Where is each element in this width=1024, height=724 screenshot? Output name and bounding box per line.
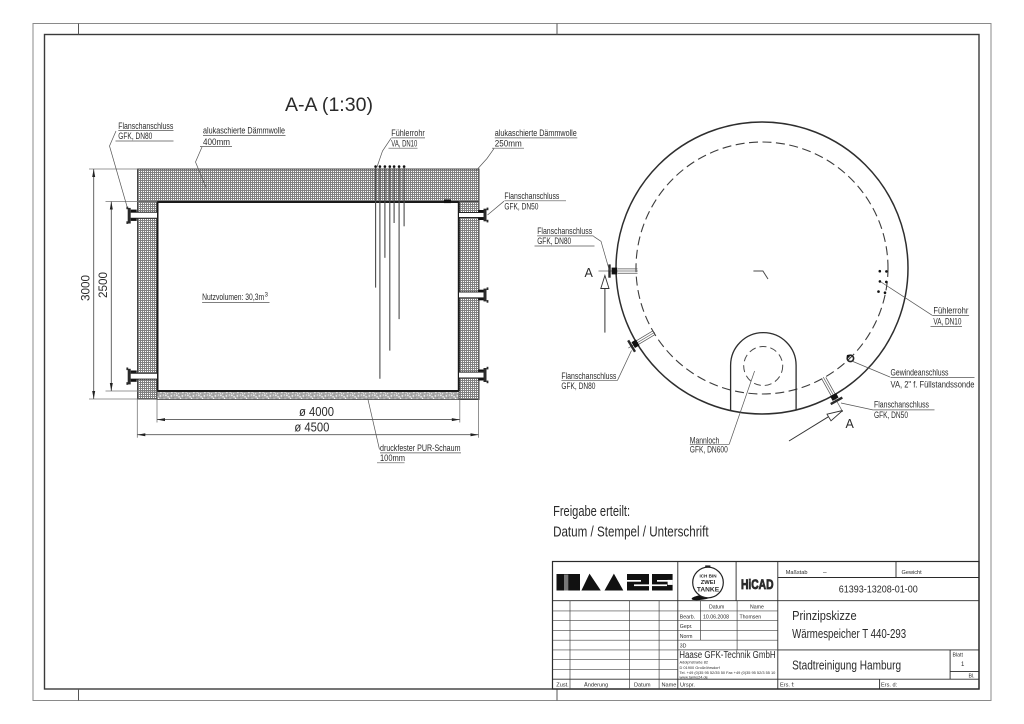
svg-text:Gepr.: Gepr. xyxy=(680,624,693,630)
svg-text:Bl.: Bl. xyxy=(969,674,975,680)
svg-text:–: – xyxy=(823,569,827,576)
svg-text:Flanschanschluss: Flanschanschluss xyxy=(874,400,929,410)
svg-text:A: A xyxy=(585,266,594,280)
svg-text:Freigabe erteilt:: Freigabe erteilt: xyxy=(553,504,630,520)
svg-text:ø 4000: ø 4000 xyxy=(299,405,334,419)
svg-text:Bearb.: Bearb. xyxy=(680,614,695,620)
svg-text:D 01900 Großröhrsdorf: D 01900 Großröhrsdorf xyxy=(680,665,721,670)
svg-text:ø 4500: ø 4500 xyxy=(294,421,329,435)
svg-text:HiCAD: HiCAD xyxy=(741,576,774,592)
svg-text:400mm: 400mm xyxy=(203,137,230,147)
svg-text:Ers. f:: Ers. f: xyxy=(780,682,795,688)
svg-text:GFK, DN80: GFK, DN80 xyxy=(537,236,571,246)
svg-text:250mm: 250mm xyxy=(495,138,522,148)
svg-text:GFK, DN80: GFK, DN80 xyxy=(118,131,152,141)
svg-text:Prinzipskizze: Prinzipskizze xyxy=(792,609,857,623)
svg-text:Ers. d:: Ers. d: xyxy=(881,682,898,688)
svg-text:Zust.: Zust. xyxy=(556,682,569,688)
svg-text:Fühlerrohr: Fühlerrohr xyxy=(391,128,425,138)
svg-text:3000: 3000 xyxy=(81,275,93,301)
svg-text:Änderung: Änderung xyxy=(584,681,608,688)
svg-text:Name: Name xyxy=(662,682,677,688)
svg-text:druckfester PUR-Schaum: druckfester PUR-Schaum xyxy=(380,443,461,453)
svg-text:Thomsen: Thomsen xyxy=(740,614,762,620)
svg-text:Gewindeanschluss: Gewindeanschluss xyxy=(891,368,949,378)
svg-text:Flanschanschluss: Flanschanschluss xyxy=(504,191,559,201)
svg-text:GFK, DN600: GFK, DN600 xyxy=(690,445,728,455)
svg-text:Fühlerrohr: Fühlerrohr xyxy=(933,305,968,315)
svg-text:Adolphstraße 82: Adolphstraße 82 xyxy=(680,660,709,665)
svg-text:Blatt: Blatt xyxy=(953,653,964,659)
svg-text:VA, DN10: VA, DN10 xyxy=(933,317,961,327)
svg-text:Datum / Stempel / Unterschri: Datum / Stempel / Unterschrift xyxy=(553,525,709,541)
svg-text:alukaschierte Dämmwolle: alukaschierte Dämmwolle xyxy=(203,126,285,136)
svg-text:Datum: Datum xyxy=(634,682,651,688)
svg-text:ZWEI: ZWEI xyxy=(701,580,716,586)
svg-text:TANKE: TANKE xyxy=(697,587,720,594)
svg-text:Flanschanschluss: Flanschanschluss xyxy=(537,226,592,236)
svg-text:GFK, DN50: GFK, DN50 xyxy=(874,410,908,420)
svg-text:alukaschierte Dämmwolle: alukaschierte Dämmwolle xyxy=(495,128,577,138)
svg-text:Datum: Datum xyxy=(709,605,724,611)
svg-text:Norm: Norm xyxy=(680,634,693,640)
svg-text:A: A xyxy=(846,417,855,431)
svg-text:Wärmespeicher T 440-293: Wärmespeicher T 440-293 xyxy=(792,627,906,641)
svg-text:10.06.2008: 10.06.2008 xyxy=(703,614,729,620)
svg-text:VA, DN10: VA, DN10 xyxy=(391,138,417,148)
svg-text:3: 3 xyxy=(265,293,269,299)
svg-text:www.tanks24.de: www.tanks24.de xyxy=(680,675,708,680)
svg-text:ICH BIN: ICH BIN xyxy=(699,574,717,579)
svg-text:100mm: 100mm xyxy=(380,453,405,463)
svg-text:Urspr.: Urspr. xyxy=(680,682,695,688)
svg-text:Gewicht: Gewicht xyxy=(902,570,923,576)
svg-text:GFK, DN80: GFK, DN80 xyxy=(561,381,595,391)
svg-text:61393-13208-01-00: 61393-13208-01-00 xyxy=(839,584,918,596)
svg-text:Maßstab: Maßstab xyxy=(786,570,808,576)
svg-text:A-A (1:30): A-A (1:30) xyxy=(285,95,373,116)
svg-text:2500: 2500 xyxy=(98,272,110,298)
svg-text:Flanschanschluss: Flanschanschluss xyxy=(561,371,616,381)
svg-text:GFK, DN50: GFK, DN50 xyxy=(504,201,538,211)
svg-text:Stadtreinigung Hamburg: Stadtreinigung Hamburg xyxy=(792,658,901,672)
svg-text:1: 1 xyxy=(961,662,965,668)
svg-text:Flanschanschluss: Flanschanschluss xyxy=(118,121,173,131)
svg-text:Nutzvolumen: 30,3m: Nutzvolumen: 30,3m xyxy=(202,292,264,302)
svg-text:Name: Name xyxy=(750,605,764,611)
svg-text:VA, 2" f. Füllstandssonde: VA, 2" f. Füllstandssonde xyxy=(891,380,975,390)
svg-text:3D: 3D xyxy=(680,644,687,650)
